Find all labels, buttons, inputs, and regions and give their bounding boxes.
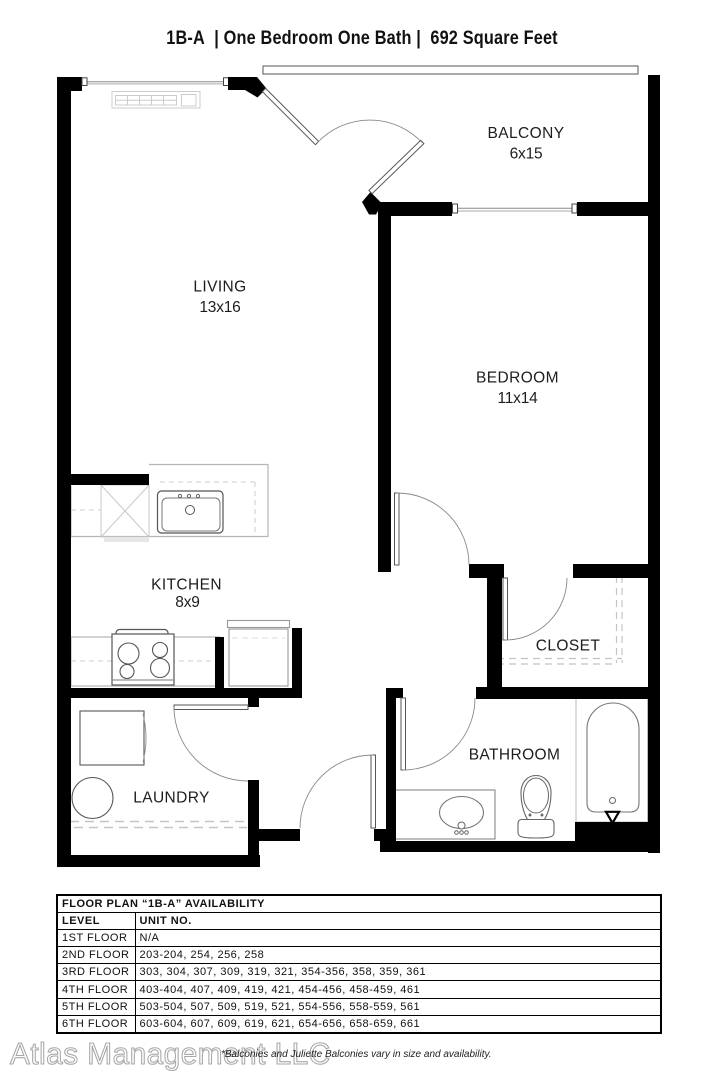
svg-text:LAUNDRY: LAUNDRY [133,790,210,807]
svg-text:LIVING: LIVING [193,279,246,296]
svg-text:11x14: 11x14 [497,390,538,407]
svg-text:BATHROOM: BATHROOM [469,747,561,764]
svg-text:13x16: 13x16 [199,299,240,316]
svg-text:CLOSET: CLOSET [536,638,601,655]
svg-text:BALCONY: BALCONY [488,125,565,142]
svg-text:BEDROOM: BEDROOM [476,370,559,387]
svg-text:KITCHEN: KITCHEN [151,577,222,594]
svg-text:8x9: 8x9 [175,594,199,611]
svg-text:6x15: 6x15 [510,146,543,163]
